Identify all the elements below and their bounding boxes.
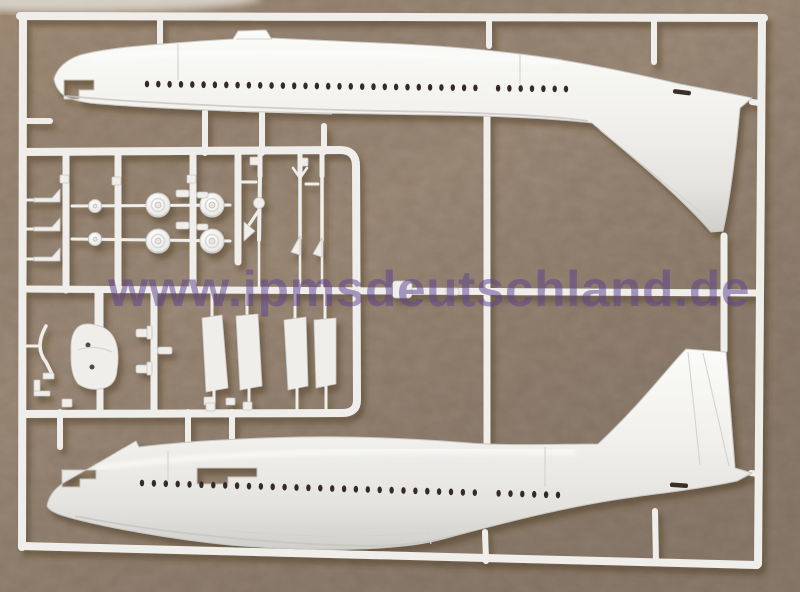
cabin-window	[292, 82, 296, 89]
cabin-window	[449, 489, 453, 496]
cabin-window	[428, 84, 432, 91]
cabin-window	[437, 488, 441, 495]
cabin-window	[269, 82, 273, 89]
cabin-window	[224, 82, 228, 89]
cabin-window	[282, 484, 286, 491]
cabin-window	[519, 85, 523, 92]
cabin-window	[179, 81, 183, 88]
cabin-window	[366, 486, 370, 493]
gear-door-panel	[284, 317, 308, 390]
cabin-window	[201, 81, 205, 88]
cabin-window	[473, 85, 477, 92]
cabin-window	[378, 487, 382, 494]
cabin-window	[156, 81, 160, 88]
cabin-window	[247, 483, 251, 490]
cabin-window	[507, 85, 511, 92]
cabin-window	[318, 485, 322, 492]
cabin-window	[211, 482, 215, 489]
cabin-window	[520, 491, 524, 498]
frame-bar-left	[22, 16, 23, 547]
gear-door-panel	[236, 314, 262, 390]
cabin-window	[337, 83, 341, 90]
cabin-window	[235, 482, 239, 489]
sprue-photo: www.ipmsdeutschland.de	[0, 0, 800, 592]
cabin-window	[371, 83, 375, 90]
cabin-window	[190, 81, 194, 88]
main-wheel-part	[146, 229, 170, 253]
cabin-window	[496, 490, 500, 497]
main-wheel-part	[146, 193, 170, 217]
cabin-window	[247, 82, 251, 89]
cabin-window	[187, 481, 191, 488]
cabin-window	[461, 489, 465, 496]
gate-belly-1	[485, 532, 486, 561]
cabin-window	[541, 85, 545, 92]
cabin-window	[258, 82, 262, 89]
cabin-window	[176, 481, 180, 488]
cabin-window	[152, 480, 156, 487]
watermark-text: www.ipmsdeutschland.de	[107, 261, 750, 317]
cabin-window	[425, 488, 429, 495]
cabin-window	[303, 83, 307, 90]
cabin-window	[199, 481, 203, 488]
cabin-window	[530, 85, 534, 92]
cabin-window	[532, 491, 536, 498]
cabin-window	[508, 490, 512, 497]
cabin-window	[167, 81, 171, 88]
cabin-window	[360, 83, 364, 90]
cabin-window	[556, 492, 560, 499]
cabin-window	[164, 480, 168, 487]
cabin-window	[140, 480, 144, 487]
cabin-window	[462, 84, 466, 91]
cabin-window	[496, 85, 500, 92]
main-wheel-part	[200, 229, 224, 253]
gate-belly-2	[655, 511, 656, 563]
cabin-window	[413, 488, 417, 495]
nose-wheel-part	[89, 233, 102, 246]
gate-tail-top	[752, 102, 760, 103]
cabin-window	[342, 485, 346, 492]
cabin-window	[294, 484, 298, 491]
cabin-window	[401, 487, 405, 494]
cabin-window	[394, 84, 398, 91]
cabin-window	[439, 84, 443, 91]
cabin-window	[354, 486, 358, 493]
cabin-window	[383, 83, 387, 90]
cabin-window	[306, 484, 310, 491]
cabin-window	[473, 489, 477, 496]
cabin-window	[451, 84, 455, 91]
cabin-window	[315, 83, 319, 90]
cabin-window	[417, 84, 421, 91]
cabin-window	[213, 81, 217, 88]
cabin-window	[553, 86, 557, 93]
cabin-window	[349, 83, 353, 90]
cabin-window	[223, 482, 227, 489]
cabin-window	[544, 491, 548, 498]
cabin-window	[330, 485, 334, 492]
cabin-window	[389, 487, 393, 494]
gear-door-panel	[314, 318, 336, 388]
cabin-window	[235, 82, 239, 89]
cabin-window	[271, 483, 275, 490]
cabin-window	[564, 86, 568, 93]
cabin-window	[281, 82, 285, 89]
cabin-window	[326, 83, 330, 90]
nose-wheel-part	[89, 200, 102, 213]
cabin-window	[259, 483, 263, 490]
cabin-window	[405, 84, 409, 91]
cabin-window	[145, 81, 149, 88]
